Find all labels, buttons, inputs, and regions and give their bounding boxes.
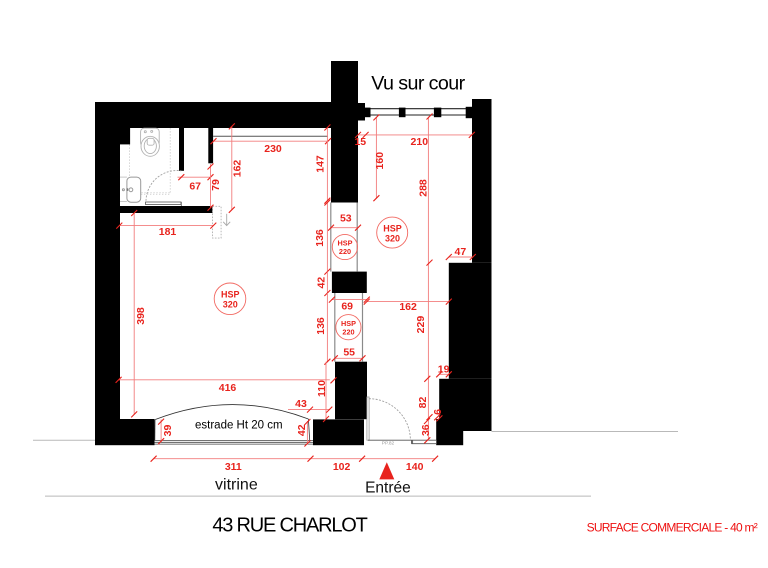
svg-text:47: 47 <box>455 246 467 258</box>
svg-text:210: 210 <box>411 136 429 148</box>
svg-text:162: 162 <box>232 160 244 178</box>
svg-text:230: 230 <box>264 143 282 155</box>
svg-text:136: 136 <box>314 229 326 247</box>
svg-text:estrade Ht 20 cm: estrade Ht 20 cm <box>195 420 283 432</box>
svg-text:416: 416 <box>219 382 237 394</box>
svg-text:229: 229 <box>415 316 427 334</box>
svg-text:311: 311 <box>225 461 242 473</box>
svg-text:39: 39 <box>162 425 174 437</box>
svg-text:220: 220 <box>342 327 354 336</box>
svg-text:110: 110 <box>316 380 328 397</box>
svg-text:53: 53 <box>340 213 352 225</box>
svg-text:vitrine: vitrine <box>215 477 258 494</box>
svg-text:320: 320 <box>385 233 400 243</box>
svg-text:220: 220 <box>339 247 351 256</box>
svg-text:6: 6 <box>432 409 444 415</box>
svg-text:79: 79 <box>210 179 222 191</box>
svg-text:42: 42 <box>315 277 327 289</box>
svg-text:PP.82: PP.82 <box>382 441 395 447</box>
svg-text:181: 181 <box>159 226 177 238</box>
svg-text:Entrée: Entrée <box>365 479 411 496</box>
svg-text:55: 55 <box>343 347 355 359</box>
svg-text:320: 320 <box>223 300 238 310</box>
svg-text:19: 19 <box>438 363 450 375</box>
svg-text:147: 147 <box>315 155 327 173</box>
svg-text:82: 82 <box>417 397 429 409</box>
svg-text:160: 160 <box>374 152 386 170</box>
svg-text:43 RUE CHARLOT: 43 RUE CHARLOT <box>212 515 367 537</box>
svg-text:Vu sur cour: Vu sur cour <box>371 72 465 94</box>
svg-text:102: 102 <box>333 461 351 473</box>
svg-text:398: 398 <box>135 307 147 325</box>
svg-text:162: 162 <box>399 301 417 313</box>
svg-text:SURFACE COMMERCIALE - 40 m²: SURFACE COMMERCIALE - 40 m² <box>587 520 758 534</box>
svg-text:42: 42 <box>296 424 308 436</box>
svg-text:43: 43 <box>295 398 307 410</box>
svg-text:136: 136 <box>315 317 327 335</box>
svg-text:36: 36 <box>420 424 432 436</box>
svg-text:HSP: HSP <box>221 290 240 300</box>
svg-text:15: 15 <box>354 136 366 148</box>
svg-text:67: 67 <box>189 181 201 193</box>
svg-text:HSP: HSP <box>383 223 402 233</box>
svg-text:69: 69 <box>341 301 353 313</box>
svg-text:140: 140 <box>406 461 424 473</box>
svg-text:288: 288 <box>418 179 430 197</box>
